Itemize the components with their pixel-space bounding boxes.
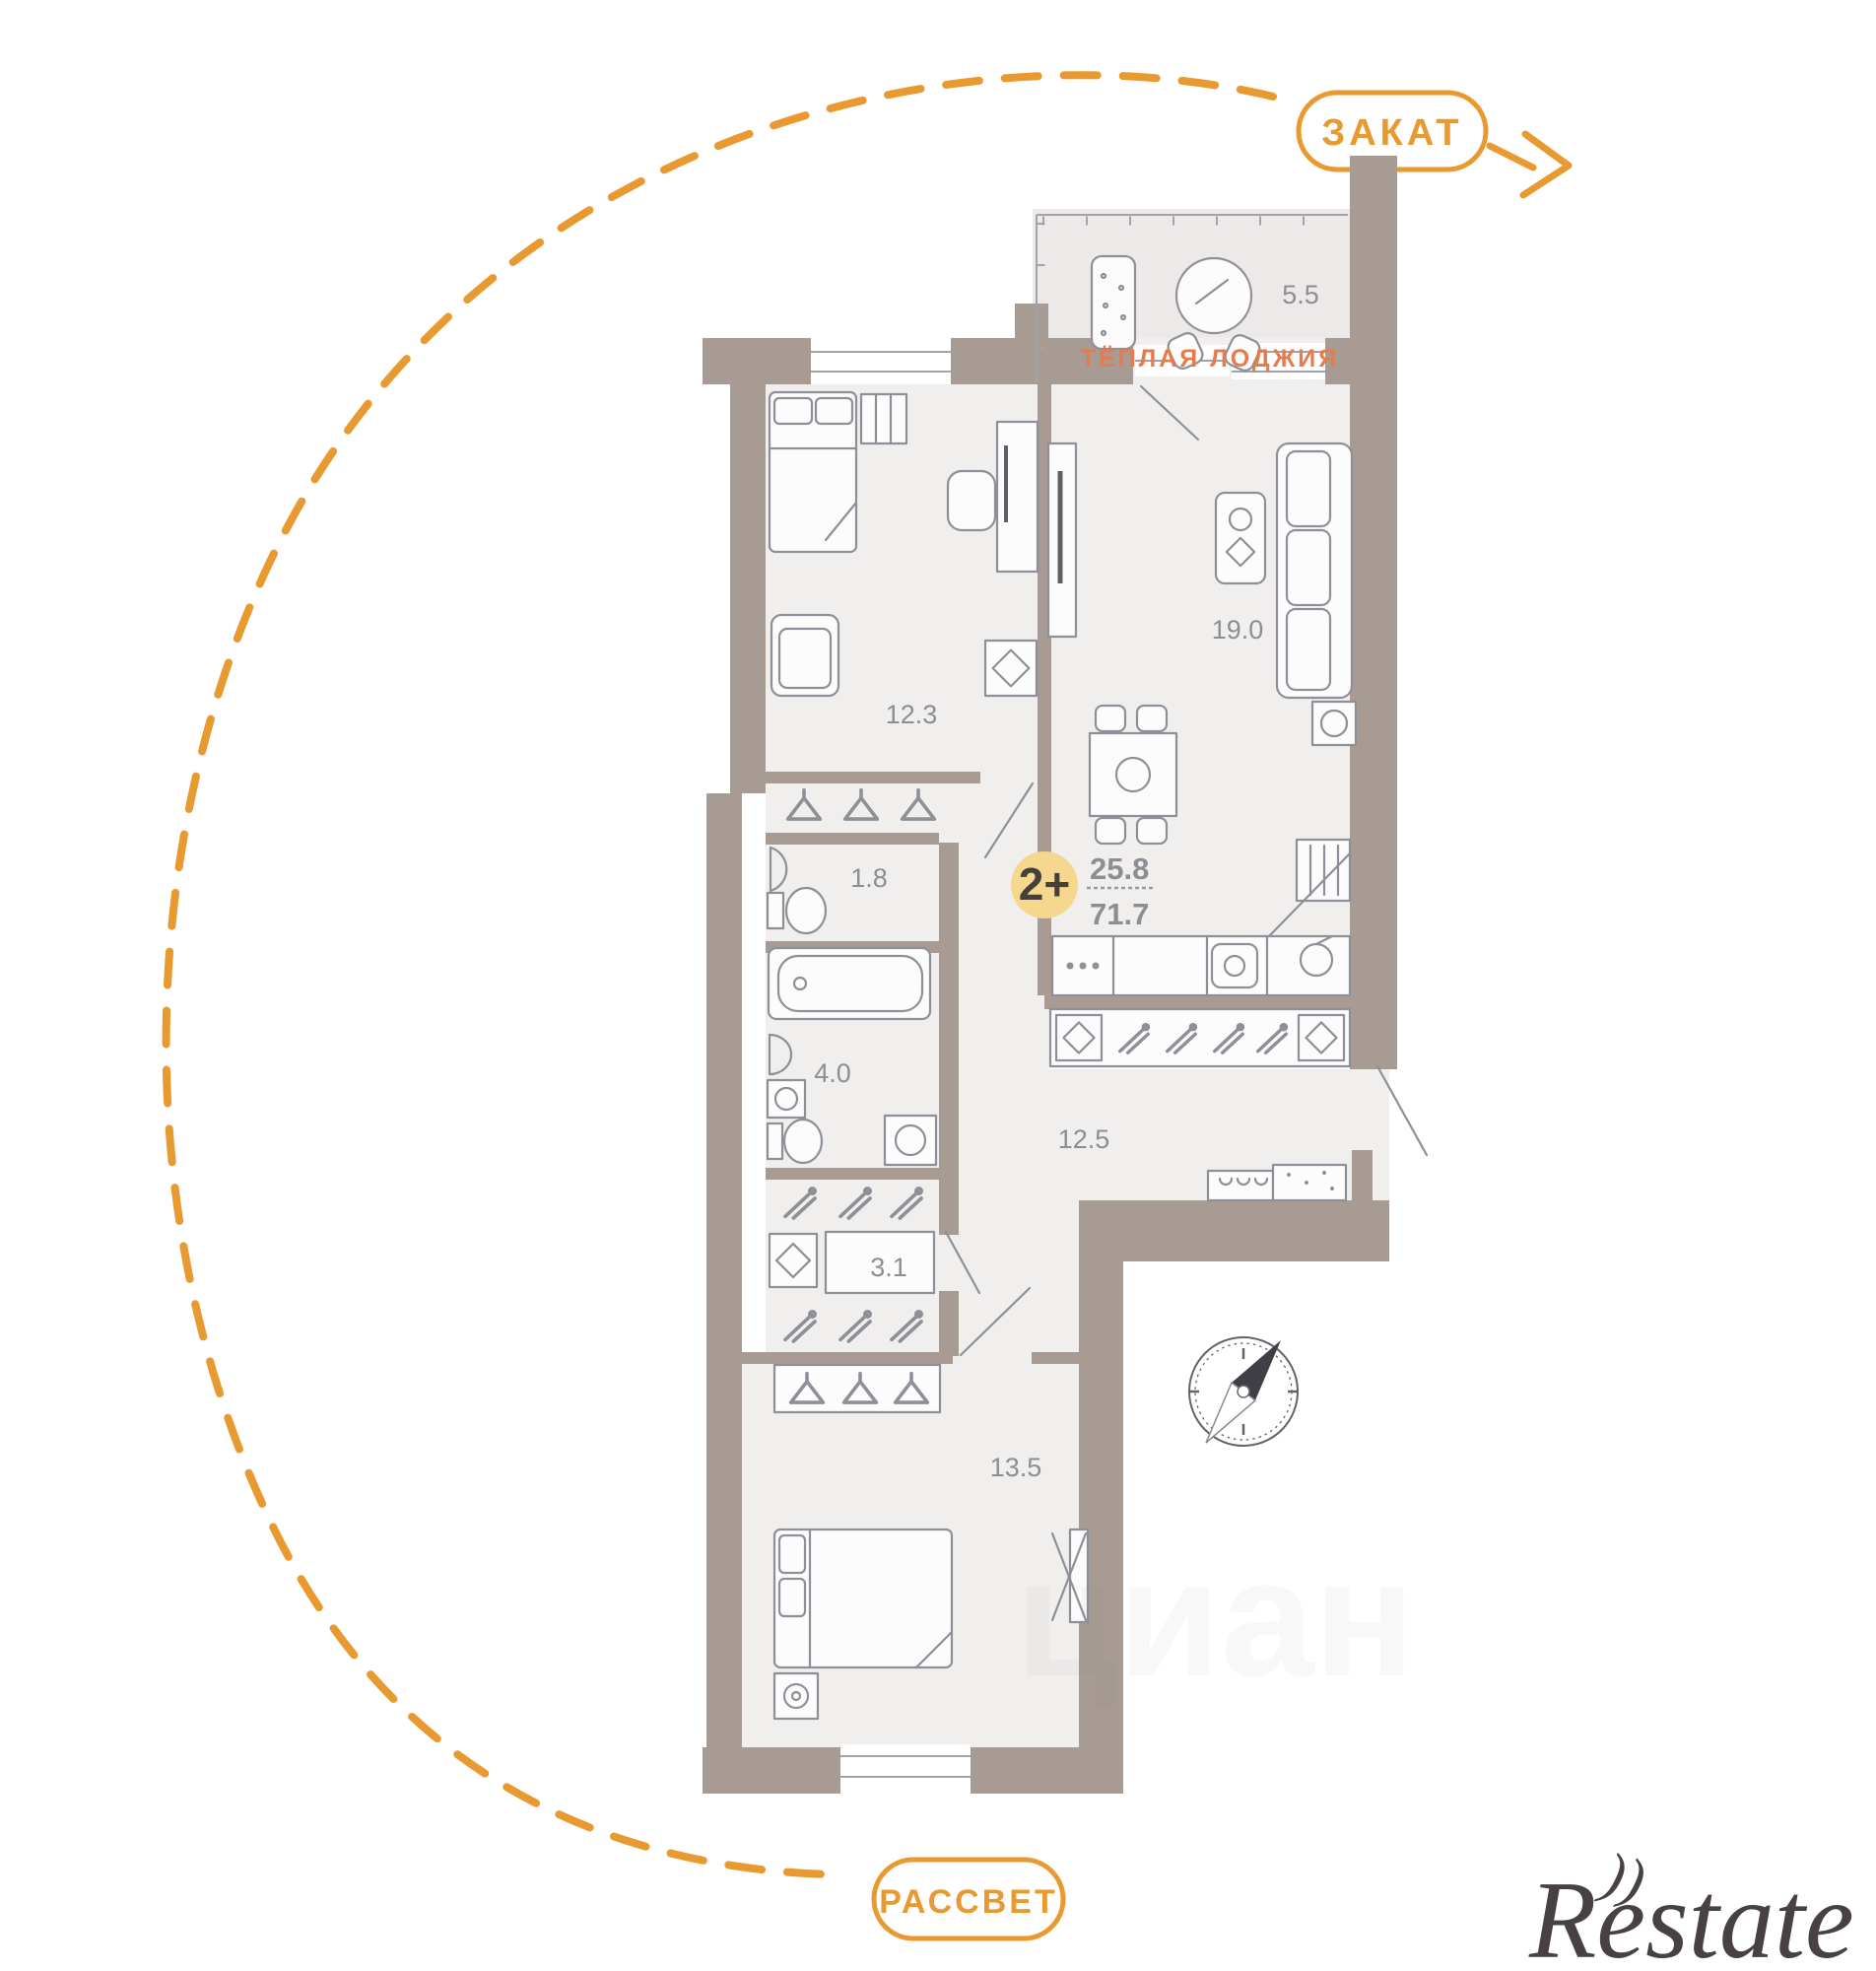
room-area-hallway: 12.5	[1058, 1124, 1110, 1154]
storage-box	[985, 641, 1037, 696]
sunrise-label-pill: РАССВЕТ	[874, 1860, 1063, 1938]
nightstand	[861, 394, 906, 443]
badge-rooms: 2+	[1019, 858, 1070, 910]
floor-plan-page: { "theme": { "accent_orange": "#E8992F",…	[0, 0, 1876, 1971]
room-area-loggia: 5.5	[1282, 280, 1319, 309]
nightstand	[774, 1673, 818, 1719]
compass-icon	[1188, 1337, 1299, 1446]
chair	[1137, 818, 1167, 844]
armchair	[771, 615, 838, 696]
basin-cabinet	[885, 1116, 936, 1165]
round-table	[1176, 258, 1251, 333]
chair	[1096, 706, 1125, 731]
side-table	[1312, 702, 1356, 745]
bathtub	[769, 948, 930, 1019]
toilet	[786, 888, 826, 933]
washing-machine	[768, 1080, 805, 1118]
toilet	[784, 1120, 822, 1163]
room-area-bedroom2: 13.5	[990, 1453, 1042, 1482]
badge-total-area: 71.7	[1090, 897, 1149, 931]
room-area-bathroom: 4.0	[814, 1058, 851, 1088]
portal-watermark: циан	[1015, 1525, 1415, 1712]
stove-icon	[1067, 963, 1074, 970]
shoe-cabinet	[1208, 1171, 1273, 1200]
dining-table	[1090, 733, 1176, 816]
sofa	[1277, 443, 1352, 698]
room-area-wardrobe: 3.1	[870, 1253, 907, 1282]
warm-loggia-label: ТЁПЛАЯ ЛОДЖИЯ	[1081, 345, 1339, 373]
chair	[1096, 818, 1125, 844]
toilet-tank	[768, 893, 783, 928]
sunset-arrow-icon	[1490, 134, 1569, 195]
sunset-label: ЗАКАТ	[1321, 112, 1462, 154]
room-area-wc: 1.8	[850, 863, 888, 893]
badge-living-area: 25.8	[1090, 851, 1149, 886]
sunrise-label: РАССВЕТ	[879, 1883, 1058, 1921]
desk	[997, 422, 1038, 572]
toilet-tank	[768, 1123, 782, 1159]
storage-box	[770, 1234, 817, 1287]
floor-plan-canvas: ЗАКАТ РАССВЕТ	[0, 0, 1876, 1971]
chair	[1137, 706, 1167, 731]
bench	[1273, 1165, 1346, 1200]
brand-watermark-text: Restate	[1528, 1860, 1854, 1971]
bed	[774, 1529, 952, 1667]
brand-watermark: )) Restate	[1528, 1839, 1854, 1971]
room-area-living: 19.0	[1212, 615, 1264, 645]
desk-chair	[948, 471, 995, 530]
room-area-bedroom: 12.3	[886, 700, 938, 729]
